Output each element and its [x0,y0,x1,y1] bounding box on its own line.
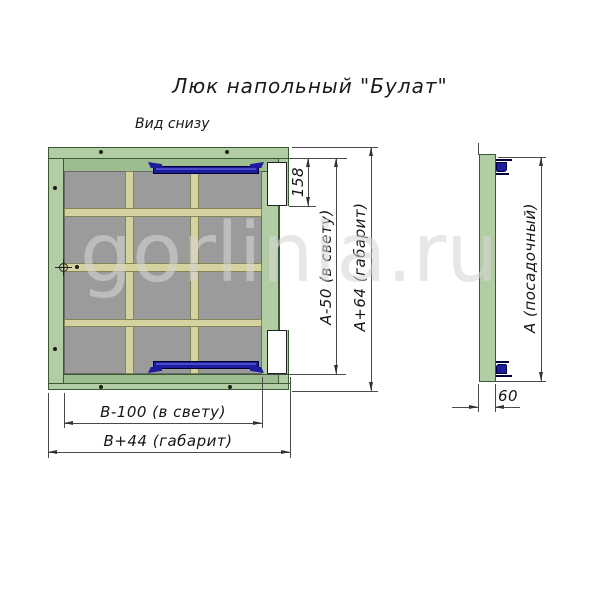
dim-label-side-height: А (посадочный) [521,203,539,333]
rib-horizontal-3 [64,319,262,327]
technical-drawing-floor-hatch: Люк напольный "Булат" Вид снизу 158 [0,0,600,600]
dim-label-158: 158 [289,167,307,197]
dim-line-width-clear [64,423,262,424]
arrow-icon [539,157,543,166]
dim-label-height-overall: А+64 (габарит) [351,203,369,332]
arrow-icon [253,421,262,425]
side-view-hatch-profile [479,154,496,382]
view-label-bottom-view: Вид снизу [135,116,210,132]
arrow-icon [48,450,57,454]
dim-label-height-clear: А-50 (в свету) [317,209,335,325]
screw-dot [99,385,103,389]
datum-cross-vline [63,259,64,276]
rib-horizontal-1 [64,208,262,217]
ext-line [48,393,49,458]
handle-top [153,166,259,174]
hinge-plate-top [267,162,287,206]
side-hook-bottom [496,364,507,374]
ext-line [289,158,347,159]
rib-vertical-1 [125,171,134,374]
dim-line-height-clear [336,158,337,374]
frame-right-cutout [279,206,291,330]
side-hook-bottom-base [496,375,512,377]
arrow-icon [369,382,373,391]
arrow-icon [306,197,310,206]
rib-vertical-2 [190,171,199,374]
arrow-icon [469,405,478,409]
ext-line [255,374,346,375]
rib-horizontal-2 [64,263,262,272]
hinge-plate-bottom [267,330,287,374]
dim-line-side-height [541,157,542,381]
ext-line [289,206,316,207]
lid-bottom-bar [63,374,279,384]
arrow-icon [281,450,290,454]
dim-line-height-overall [371,147,372,391]
side-hook-top-base [496,173,509,175]
side-hook-bottom-line [496,361,509,363]
screw-dot [99,150,103,154]
ext-line [292,391,378,392]
drawing-title: Люк напольный "Булат" [150,74,470,98]
arrow-icon [539,372,543,381]
ext-line [262,377,263,428]
arrow-icon [495,405,504,409]
screw-dot [75,265,79,269]
screw-dot [53,186,57,190]
ext-line [478,143,479,155]
side-hook-top-line [496,159,512,161]
arrow-icon [306,158,310,167]
arrow-icon [334,365,338,374]
lid-panel-field [64,171,262,374]
handle-bottom [153,361,259,369]
dim-label-width-clear: В-100 (в свету) [100,403,226,421]
side-hook-top [496,162,507,172]
arrow-icon [64,421,73,425]
ext-line [494,381,546,382]
dim-line-width-overall [48,452,290,453]
ext-line [292,147,378,148]
dim-label-thickness: 60 [498,387,518,405]
screw-dot [53,347,57,351]
arrow-icon [369,147,373,156]
ext-line [290,377,291,458]
screw-dot [225,150,229,154]
arrow-icon [334,158,338,167]
ext-line [478,384,479,412]
screw-dot [228,385,232,389]
dim-label-width-overall: В+44 (габарит) [104,432,233,450]
